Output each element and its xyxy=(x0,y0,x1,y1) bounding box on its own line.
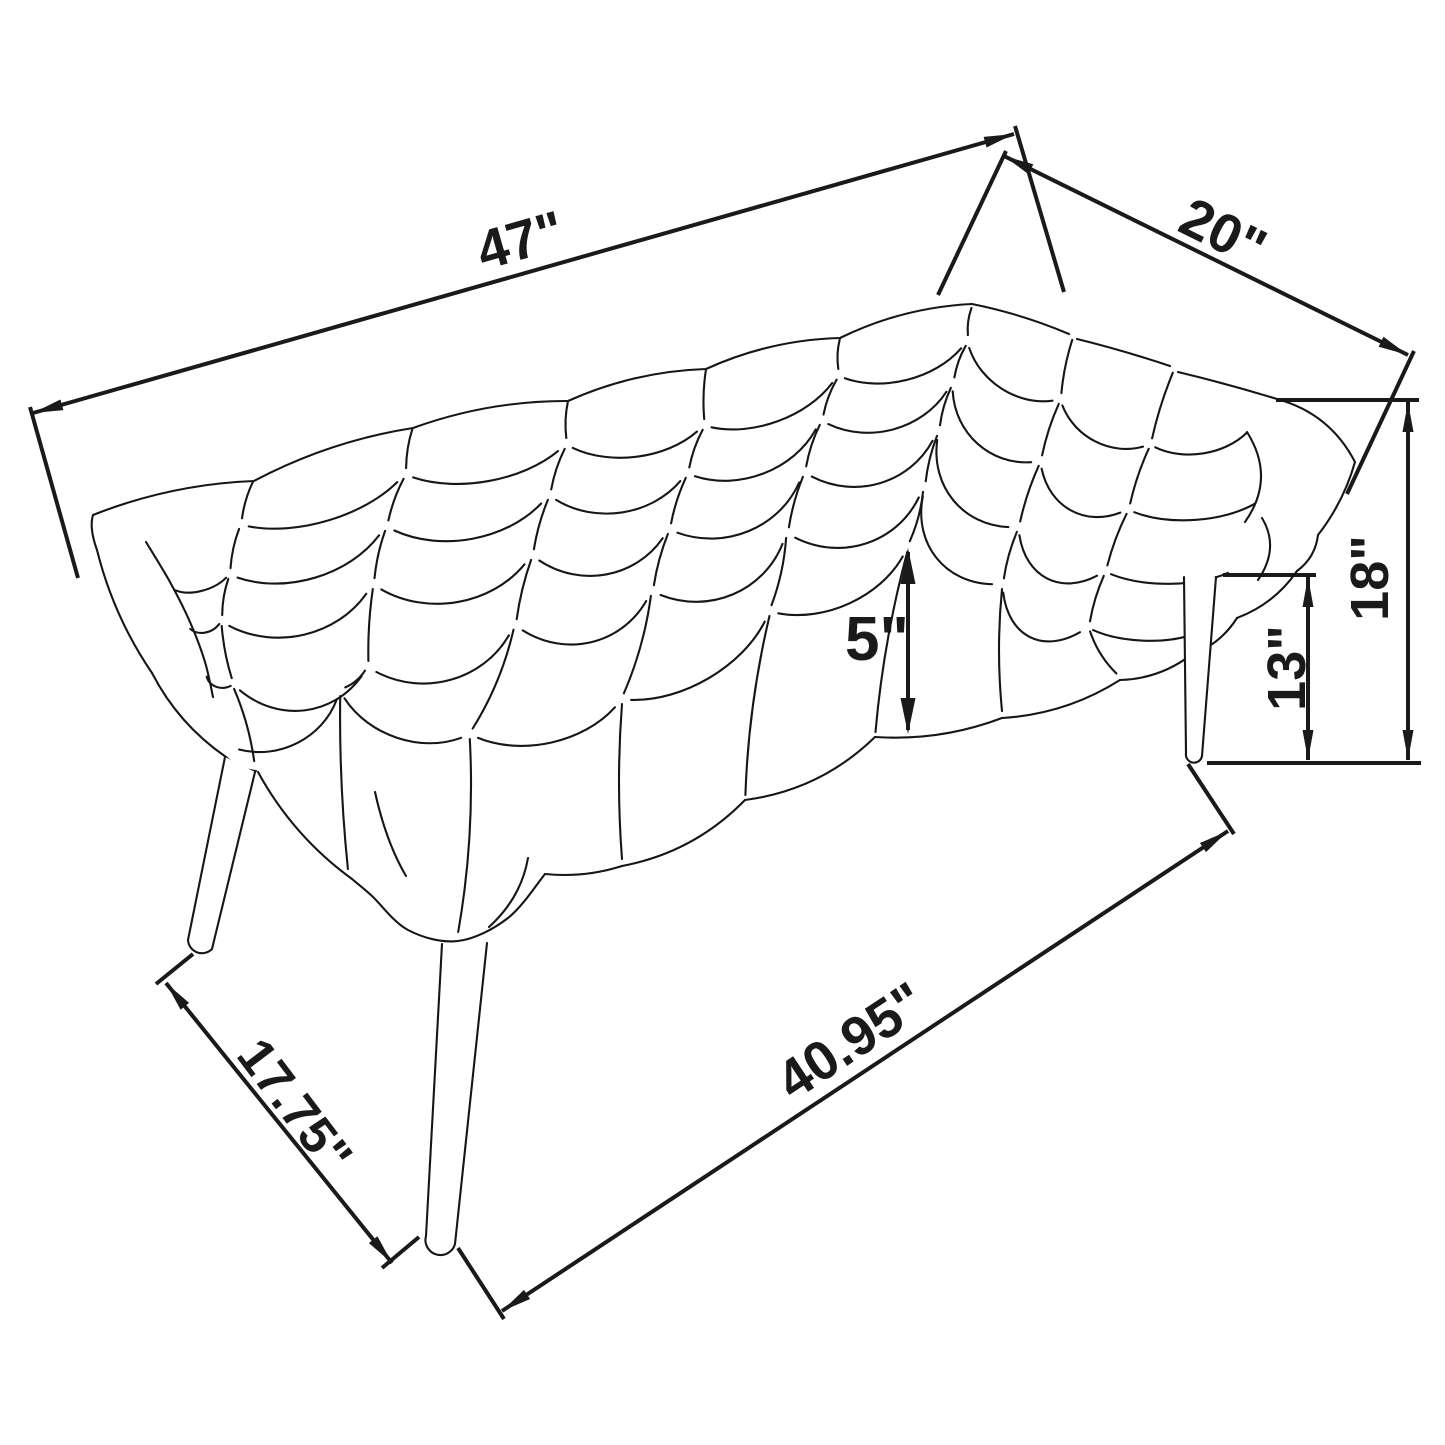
svg-text:5": 5" xyxy=(845,605,909,674)
svg-text:13": 13" xyxy=(1257,625,1317,711)
svg-text:47": 47" xyxy=(470,198,571,282)
svg-text:18": 18" xyxy=(1340,535,1400,621)
svg-text:20": 20" xyxy=(1170,185,1276,279)
svg-text:17.75": 17.75" xyxy=(226,1028,363,1183)
